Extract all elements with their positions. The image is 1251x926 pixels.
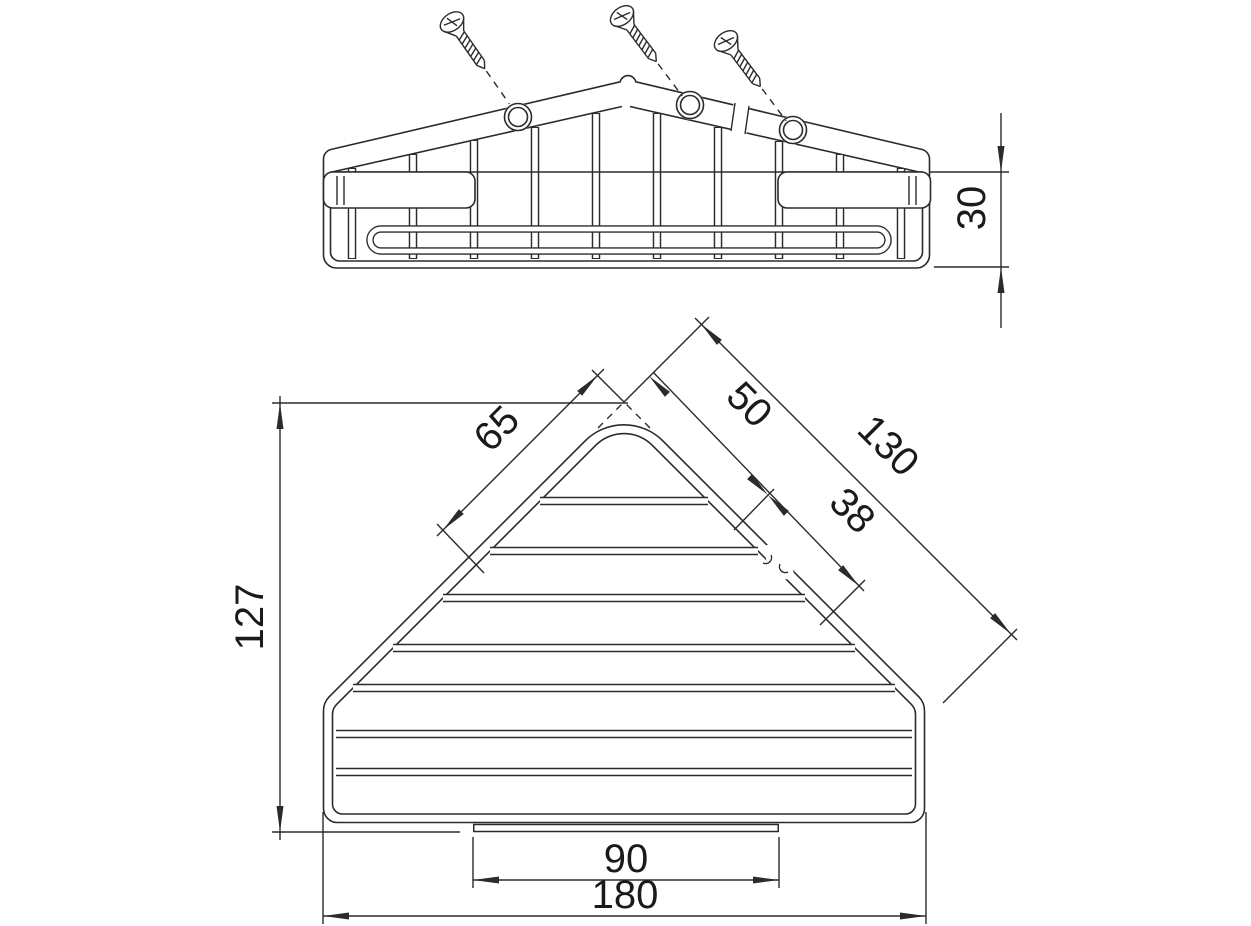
- plan-outer-rim: [324, 425, 925, 823]
- plan-inner-rim: [333, 434, 916, 814]
- dimension-50-label: 50: [718, 374, 781, 437]
- dimension-30-group: 30: [930, 113, 1009, 328]
- dimension-130-label: 130: [849, 407, 927, 485]
- screw-left: [436, 8, 520, 112]
- wall-bracket-left: [324, 172, 476, 208]
- dimension-180-label: 180: [592, 873, 659, 917]
- plan-view: 127 65 50 38 130: [228, 317, 1017, 924]
- plan-shelf-wires: [336, 501, 912, 772]
- front-view: 30: [323, 1, 1009, 328]
- screw-right: [711, 26, 797, 128]
- plan-rim-split: [762, 542, 796, 580]
- dimension-65-group: 65: [437, 369, 604, 573]
- dimension-65-label: 65: [466, 398, 529, 461]
- technical-drawing-canvas: 30: [0, 0, 1251, 926]
- dimension-30-label: 30: [950, 186, 994, 231]
- dimension-127-label: 127: [228, 584, 272, 651]
- wall-bracket-right: [778, 172, 931, 208]
- front-bottom-rails: [370, 229, 888, 251]
- drawing-page: 30: [0, 0, 1251, 926]
- screw-middle: [607, 1, 693, 103]
- dimension-38-label: 38: [821, 480, 884, 543]
